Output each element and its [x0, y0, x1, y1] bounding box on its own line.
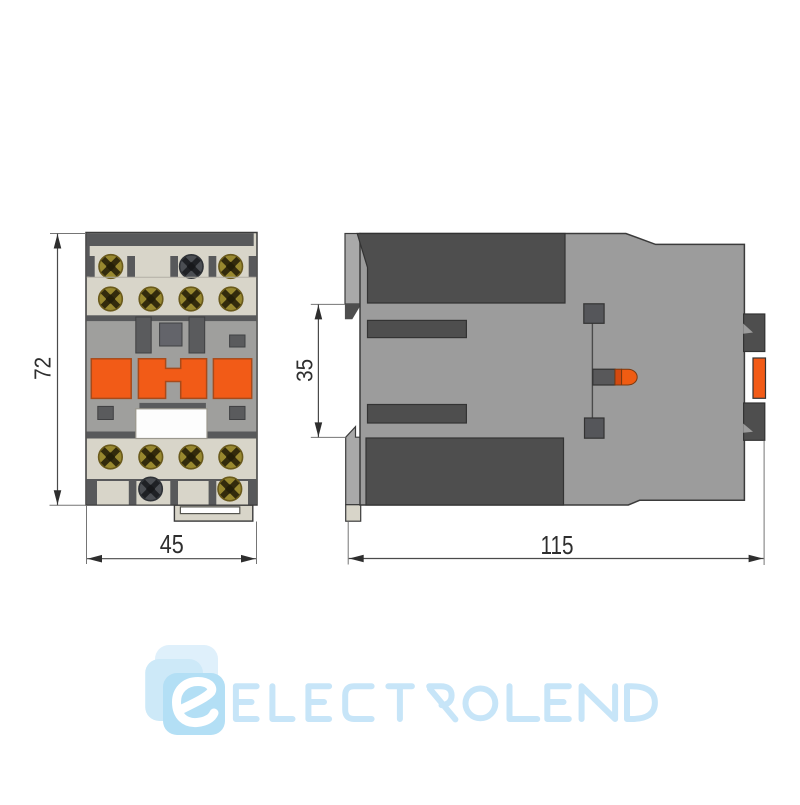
svg-text:115: 115: [541, 530, 574, 560]
svg-text:45: 45: [160, 529, 184, 559]
svg-text:35: 35: [291, 359, 317, 382]
svg-text:72: 72: [30, 357, 56, 380]
